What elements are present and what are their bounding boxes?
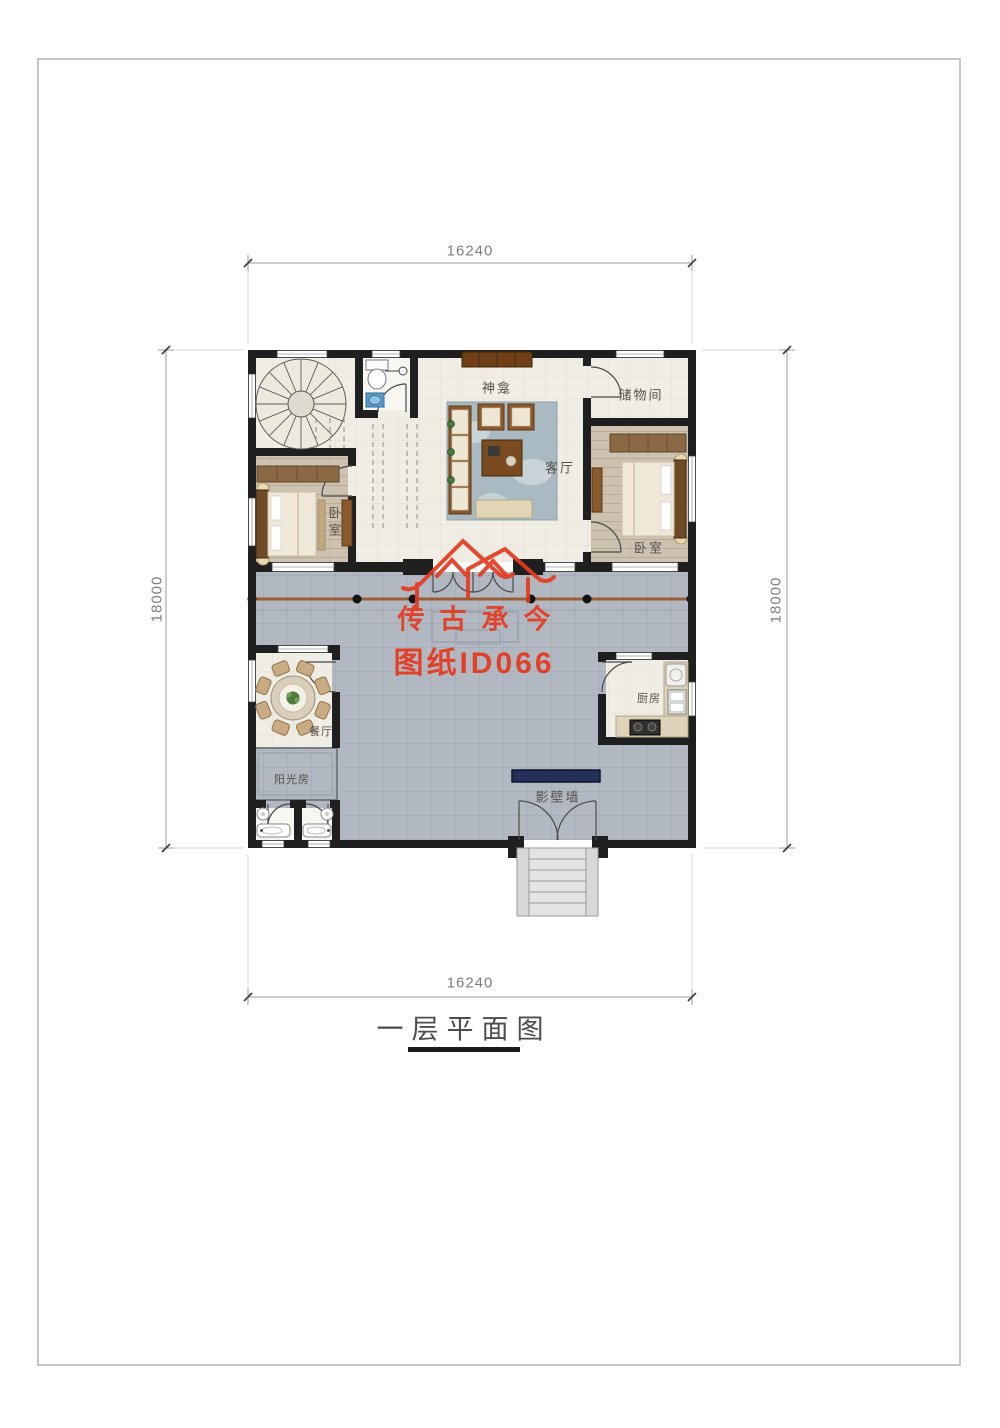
sheet-title-underline bbox=[408, 1047, 520, 1052]
column-icon bbox=[353, 595, 362, 604]
wardrobe bbox=[257, 466, 339, 482]
pillow bbox=[661, 466, 671, 494]
pillow bbox=[271, 526, 281, 550]
watermark-sheet-id: 图纸ID066 bbox=[393, 638, 554, 682]
pillow bbox=[271, 496, 281, 520]
floor-plan-sheet: { "sheet": { "title": "一层平面图" }, "dimens… bbox=[0, 0, 1000, 1428]
pillow bbox=[661, 502, 671, 530]
shrine-cabinet bbox=[462, 352, 532, 367]
living-room-furniture bbox=[447, 402, 557, 520]
room-label-dining: 餐厅 bbox=[309, 723, 333, 739]
screen-wall bbox=[512, 770, 600, 782]
room-label-kitchen: 厨房 bbox=[637, 690, 661, 706]
dimension-label-top: 16240 bbox=[447, 243, 494, 260]
plant-icon bbox=[448, 477, 455, 484]
plant-icon bbox=[448, 449, 455, 456]
column-icon bbox=[583, 595, 592, 604]
sink-icon bbox=[668, 690, 686, 714]
dimension-label-left: 18000 bbox=[149, 576, 166, 623]
tv-console bbox=[592, 468, 602, 512]
ceiling-lamp-icon bbox=[399, 367, 407, 375]
tv-console bbox=[342, 500, 352, 546]
room-label-storage: 储物间 bbox=[618, 385, 663, 404]
dimension-left bbox=[158, 346, 244, 852]
headboard bbox=[674, 460, 686, 538]
tv-bench bbox=[476, 500, 532, 518]
sheet-title: 一层平面图 bbox=[377, 1008, 552, 1047]
spiral-staircase bbox=[256, 359, 346, 449]
dimension-label-right: 18000 bbox=[768, 577, 785, 624]
coffee-table bbox=[482, 440, 522, 476]
headboard bbox=[256, 490, 268, 558]
room-label-sunroom: 阳光房 bbox=[274, 771, 310, 787]
dimension-label-bottom: 16240 bbox=[447, 975, 494, 992]
entry-porch-steps bbox=[517, 848, 598, 916]
room-label-bedroom-right: 卧室 bbox=[634, 538, 664, 557]
dimension-top bbox=[244, 255, 696, 344]
room-label-bedroom-left: 卧室 bbox=[325, 506, 344, 540]
floor-plan-drawing bbox=[0, 0, 1000, 1428]
fridge-icon bbox=[666, 664, 686, 686]
room-label-shrine: 神龛 bbox=[482, 378, 512, 397]
room-label-living: 客厅 bbox=[545, 458, 575, 477]
door-lintel bbox=[403, 559, 433, 575]
room-label-screen-wall: 影壁墙 bbox=[535, 787, 580, 806]
plant-icon bbox=[448, 421, 455, 428]
watermark-brand-text: 传古承今 bbox=[383, 598, 566, 637]
